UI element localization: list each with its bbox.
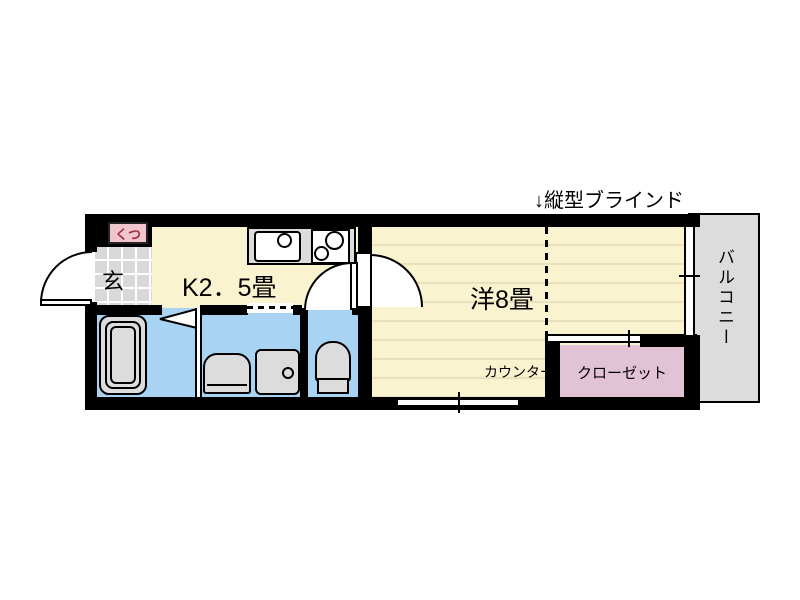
wall-top <box>88 214 700 227</box>
entrance-door-leaf <box>40 299 92 306</box>
shoe-cabinet-label: くつ <box>115 224 141 243</box>
washbasin <box>203 353 251 394</box>
bathtub <box>99 315 147 395</box>
vertical-blind-line <box>545 227 548 335</box>
counter-label: カウンター <box>484 362 554 382</box>
sink-faucet-icon <box>277 233 292 248</box>
wall-kitchen-west-upper <box>358 214 372 252</box>
wall-washroom-toilet <box>300 308 308 400</box>
bathroom-partition <box>195 308 202 397</box>
wall-left-lower <box>85 302 97 410</box>
toilet-bowl <box>315 341 351 382</box>
drain-icon <box>282 367 294 379</box>
washbasin-edge <box>207 384 247 386</box>
entrance-door-swing <box>40 251 92 303</box>
toilet-door-leaf <box>350 262 358 310</box>
washroom-opening-dashes <box>247 306 293 309</box>
closet-sliding-door-tick <box>628 330 630 347</box>
bathtub-basin <box>110 326 136 384</box>
stove-burner-icon <box>325 231 344 250</box>
floor-plan: ↓縦型ブラインド くつ <box>0 0 800 600</box>
wall-left-upper <box>85 214 97 252</box>
vertical-blind-label: ↓縦型ブラインド <box>534 184 684 213</box>
toilet-tank <box>317 378 349 394</box>
stove-burner-icon <box>314 246 329 261</box>
wall-bottom-left <box>85 397 372 410</box>
balcony-window-tick <box>679 275 700 277</box>
folding-door-icon <box>158 307 200 331</box>
wall-kitchen-south-1 <box>85 305 162 315</box>
shoe-cabinet: くつ <box>108 222 148 244</box>
wall-right-lower <box>684 335 700 410</box>
western-room-label: 洋8畳 <box>470 280 534 316</box>
closet-sliding-door <box>548 334 640 343</box>
closet-label: クローゼット <box>577 362 667 383</box>
entrance-label: 玄 <box>102 264 124 296</box>
wall-kitchen-west-lower <box>358 308 372 410</box>
south-window-tick <box>458 392 460 413</box>
wall-kitchen-south-2 <box>200 305 248 315</box>
kitchen-label: K2．5畳 <box>182 268 276 304</box>
balcony-window <box>684 227 695 335</box>
balcony-label: バルコニー <box>712 248 737 348</box>
